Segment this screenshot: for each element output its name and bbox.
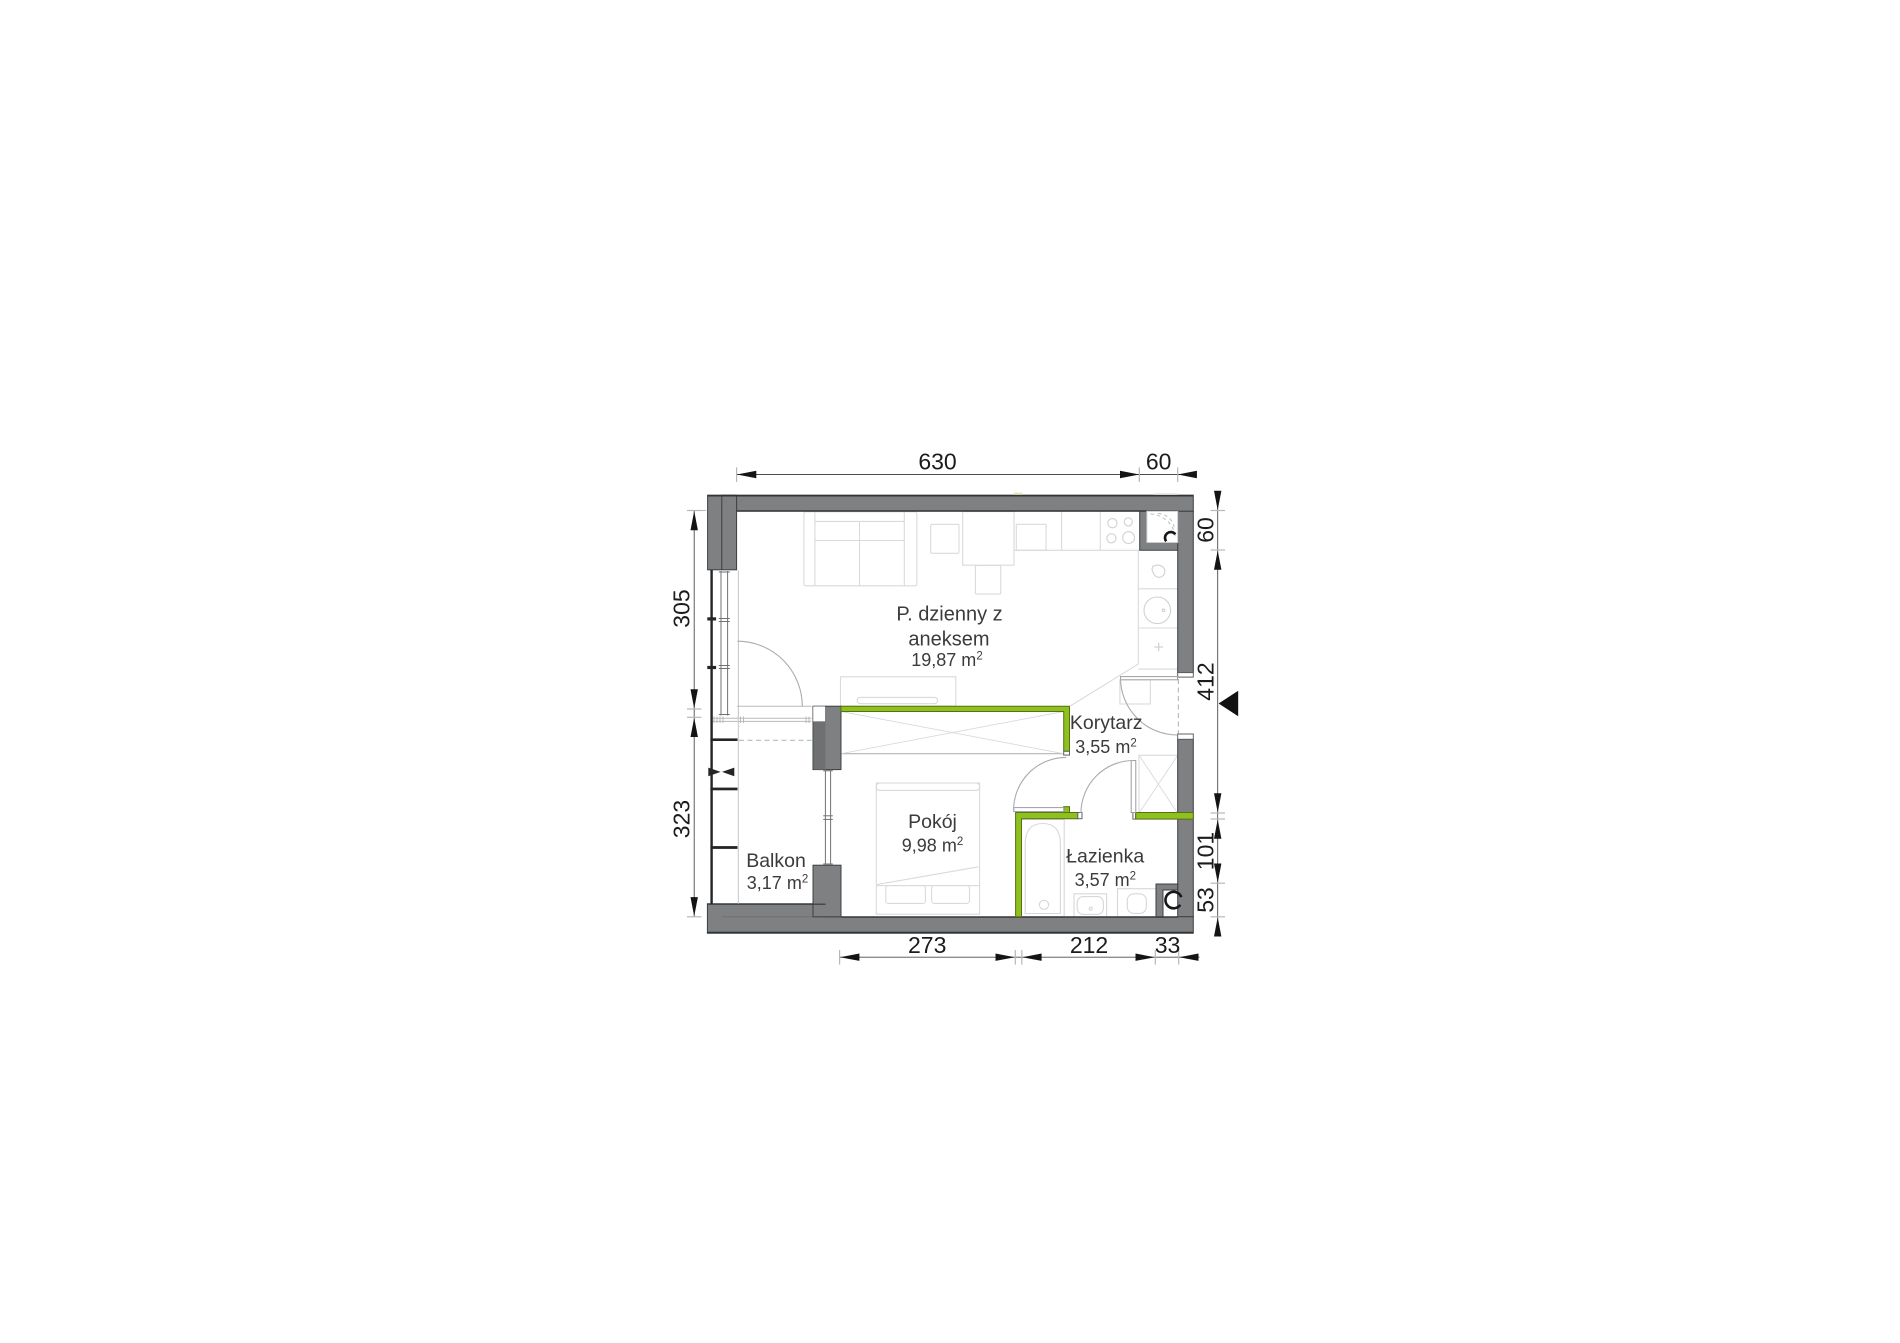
svg-text:630: 630 [918, 449, 956, 475]
svg-text:412: 412 [1193, 662, 1219, 700]
svg-text:33: 33 [1155, 932, 1181, 958]
svg-text:Korytarz: Korytarz [1070, 712, 1143, 734]
svg-text:Pokój: Pokój [908, 811, 957, 833]
svg-text:60: 60 [1193, 517, 1219, 543]
svg-text:19,87 m2: 19,87 m2 [911, 650, 982, 670]
svg-text:101: 101 [1193, 832, 1219, 870]
svg-text:212: 212 [1070, 932, 1108, 958]
svg-text:Balkon: Balkon [746, 850, 806, 872]
svg-text:3,55 m2: 3,55 m2 [1075, 737, 1136, 757]
svg-text:3,17 m2: 3,17 m2 [747, 873, 808, 893]
svg-text:9,98 m2: 9,98 m2 [902, 835, 963, 855]
svg-text:Łazienka: Łazienka [1066, 846, 1144, 868]
svg-text:3,57 m2: 3,57 m2 [1075, 870, 1136, 890]
svg-text:53: 53 [1193, 887, 1219, 913]
svg-text:305: 305 [669, 589, 695, 627]
svg-text:323: 323 [669, 800, 695, 838]
svg-text:aneksem: aneksem [908, 628, 989, 650]
svg-text:273: 273 [908, 932, 946, 958]
svg-text:P. dzienny z: P. dzienny z [896, 604, 1002, 626]
svg-text:60: 60 [1146, 449, 1172, 475]
